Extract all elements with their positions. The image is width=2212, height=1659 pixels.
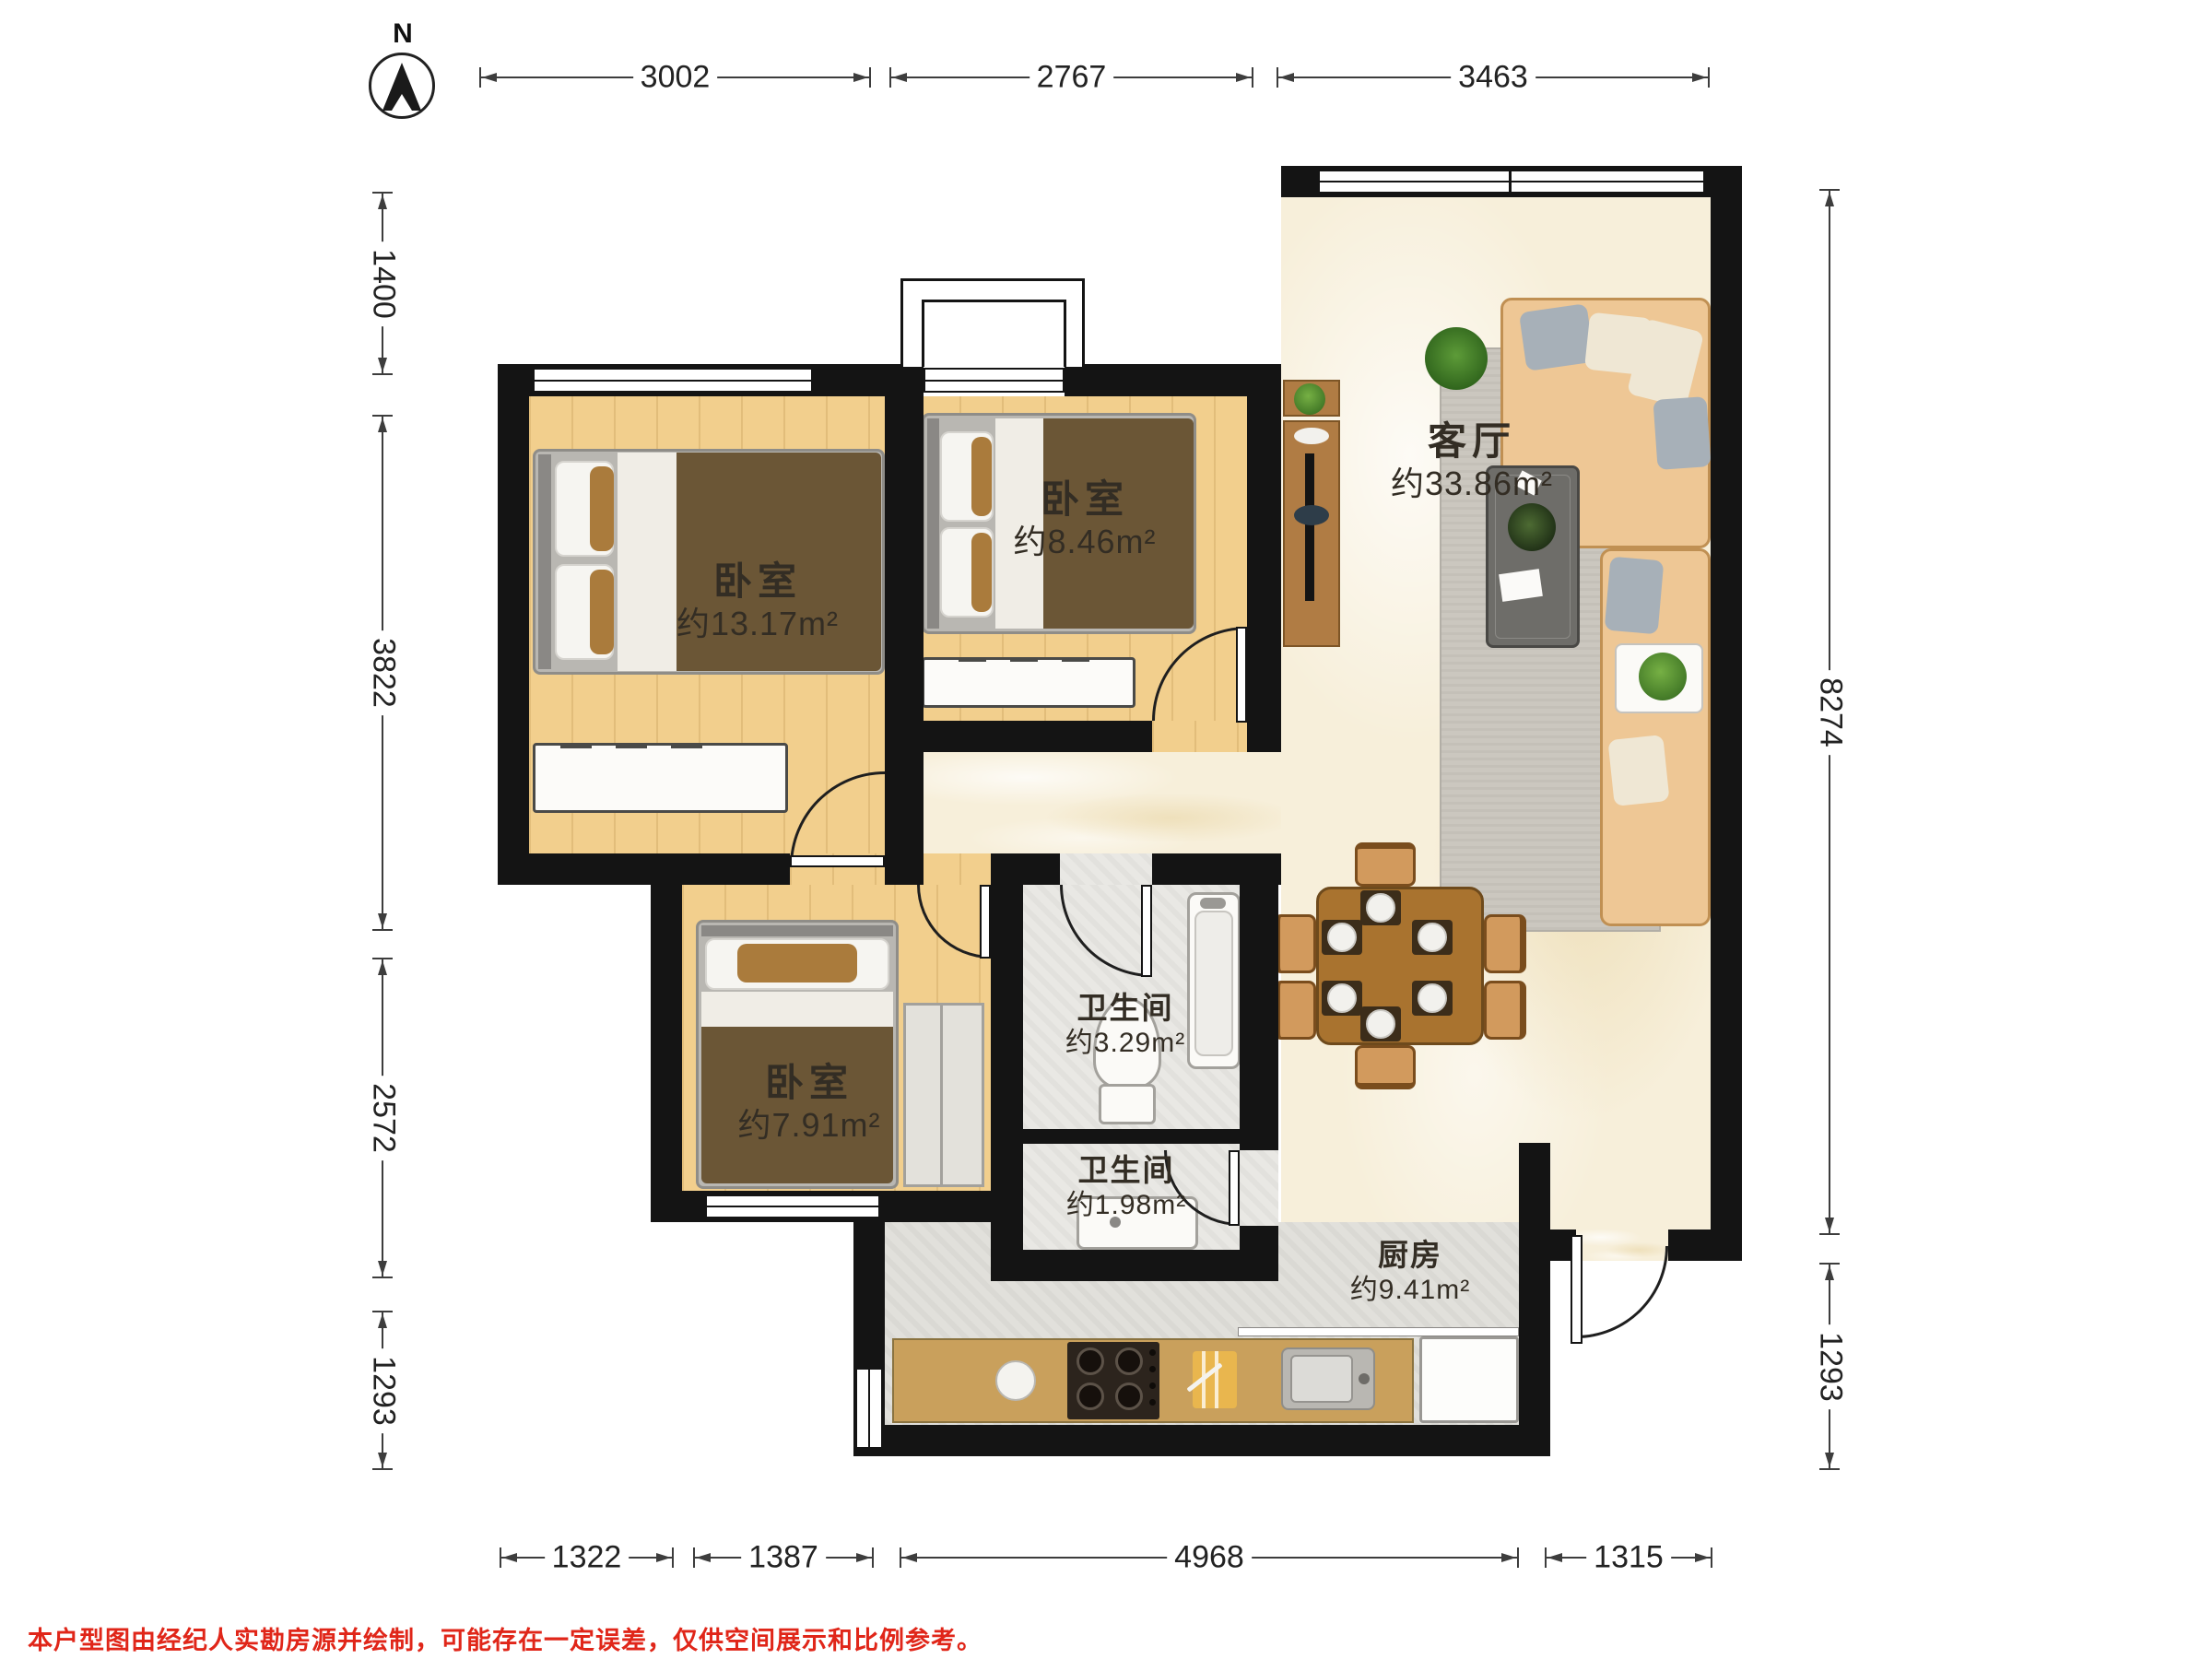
wall-right-outer — [1711, 166, 1742, 1261]
disclaimer-text: 本户型图由经纪人实勘房源并绘制，可能存在一定误差，仅供空间展示和比例参考。 — [28, 1620, 982, 1656]
dresser-main-handle-2 — [616, 743, 647, 748]
floor-plant — [1425, 327, 1488, 390]
stove-burner-4 — [1115, 1382, 1143, 1410]
dimension-value: 3002 — [633, 60, 718, 96]
dimension-top-3: 3463 — [1277, 65, 1710, 90]
dimension-right-1: 8274 — [1817, 189, 1842, 1235]
floorplan-canvas: 卧室 约13.17m² 卧室 约8.46m² 卧室 约7.91m² 客厅 约33… — [0, 0, 2212, 1659]
dresser-bedroom-mid — [922, 657, 1135, 708]
bed-main-blanket — [618, 453, 677, 671]
room-area: 约9.41m² — [1350, 1274, 1470, 1306]
door-leaf-bedroom-small — [980, 885, 991, 959]
window-bedroom-small — [705, 1194, 880, 1218]
dresser-mid-handle-2 — [1010, 657, 1038, 662]
shelf-plant — [1294, 383, 1325, 415]
wall-bathroom-bottom — [991, 1250, 1278, 1281]
dining-chair-left-1 — [1274, 914, 1316, 973]
wall-bedroom-mid-top — [1065, 364, 1247, 396]
room-label-bedroom-main: 卧室 约13.17m² — [677, 559, 839, 643]
bed-mid-pillow-brown-2 — [971, 533, 992, 612]
dining-chair-top — [1355, 842, 1416, 887]
room-area: 约7.91m² — [737, 1106, 880, 1145]
threshold-bathroom-small-door — [1240, 1150, 1278, 1226]
threshold-bathroom-main-door — [1060, 853, 1152, 885]
coffee-table-paper-1 — [1499, 569, 1543, 602]
wardrobe-divider — [940, 1006, 943, 1184]
bathtub-faucet — [1200, 898, 1226, 909]
dimension-value: 1387 — [741, 1540, 826, 1576]
kitchen-faucet — [1359, 1373, 1370, 1384]
bed-mid-headboard — [927, 418, 939, 629]
tv — [1305, 453, 1314, 601]
room-name: 卧室 — [1013, 477, 1156, 523]
place-setting-top — [1360, 890, 1401, 925]
dimension-value: 1315 — [1586, 1540, 1671, 1576]
dining-chair-right-1 — [1484, 914, 1526, 973]
wall-left-outer — [498, 364, 529, 885]
place-setting-bottom — [1360, 1006, 1401, 1041]
room-label-living-room: 客厅 约33.86m² — [1391, 418, 1553, 503]
dresser-main-handle-1 — [560, 743, 592, 748]
bed-main-pillow-brown-2 — [590, 570, 614, 654]
bed-main-pillow-brown-1 — [590, 466, 614, 551]
fridge — [1419, 1336, 1519, 1423]
dimension-value: 1322 — [545, 1540, 629, 1576]
dimension-left-4: 1293 — [370, 1311, 395, 1470]
room-area: 约33.86m² — [1391, 465, 1553, 503]
dimension-bottom-2: 1387 — [693, 1545, 874, 1571]
room-name: 卧室 — [737, 1060, 880, 1106]
wall-bathroom-divider — [991, 1129, 1240, 1144]
door-leaf-bathroom-small — [1229, 1150, 1240, 1226]
toilet-tank — [1099, 1084, 1156, 1124]
room-label-bathroom-small: 卫生间 约1.98m² — [1066, 1153, 1186, 1221]
room-name: 客厅 — [1391, 418, 1553, 465]
stove-knob-1 — [1149, 1349, 1156, 1356]
bed-main-headboard — [538, 454, 551, 669]
dimension-value: 3822 — [366, 630, 402, 715]
room-label-bedroom-mid: 卧室 约8.46m² — [1013, 477, 1156, 561]
place-setting-right-1 — [1412, 920, 1453, 955]
dimension-bottom-3: 4968 — [900, 1545, 1519, 1571]
sofa-pillow-cream-3 — [1607, 735, 1669, 806]
tv-console-tray — [1294, 505, 1329, 525]
stove-knob-3 — [1149, 1382, 1156, 1389]
wall-bedroom-mid-right — [1247, 364, 1281, 752]
fridge-top-line — [1238, 1327, 1519, 1336]
dimension-bottom-1: 1322 — [500, 1545, 674, 1571]
room-area: 约3.29m² — [1065, 1027, 1185, 1059]
kitchen-bowl — [995, 1360, 1036, 1401]
wall-kitchen-right — [1519, 1143, 1550, 1456]
dimension-value: 8274 — [1813, 670, 1849, 755]
stove-burner-3 — [1077, 1382, 1104, 1410]
bed-small-blanket — [701, 992, 893, 1027]
dimension-top-1: 3002 — [479, 65, 871, 90]
window-living-mullion — [1509, 170, 1512, 194]
room-name: 卫生间 — [1065, 991, 1185, 1027]
compass-needle-notch — [392, 94, 412, 111]
place-setting-left-1 — [1322, 920, 1362, 955]
dimension-bottom-4: 1315 — [1545, 1545, 1712, 1571]
dining-chair-bottom — [1355, 1045, 1416, 1089]
room-name: 厨房 — [1350, 1238, 1470, 1274]
room-area: 约13.17m² — [677, 605, 839, 643]
window-living-top — [1318, 170, 1705, 194]
side-table-plant — [1639, 653, 1687, 700]
compass-north-label: N — [393, 18, 413, 50]
door-arc-entry — [1576, 1246, 1668, 1338]
dining-chair-left-2 — [1274, 981, 1316, 1040]
wall-bedroom-main-bottom — [498, 853, 790, 885]
room-label-bedroom-small: 卧室 约7.91m² — [737, 1060, 880, 1145]
floor-corridor — [917, 752, 1281, 853]
tv-console-dish — [1294, 428, 1329, 444]
wall-bedroom-divider — [885, 364, 924, 885]
door-leaf-bedroom-main — [790, 855, 885, 867]
room-name: 卧室 — [677, 559, 839, 605]
coffee-table-plant — [1508, 503, 1556, 551]
wall-kitchen-bottom — [853, 1425, 1550, 1456]
bed-small-pillow-brown — [737, 944, 857, 982]
stove-knob-2 — [1149, 1366, 1156, 1372]
dimension-value: 2572 — [366, 1076, 402, 1160]
cutting-board-stripe-2 — [1215, 1351, 1218, 1408]
dimension-value: 1293 — [366, 1348, 402, 1433]
bay-window-inner — [922, 300, 1066, 367]
dresser-bedroom-main — [533, 743, 788, 813]
room-area: 约8.46m² — [1013, 523, 1156, 561]
wardrobe-bedroom-small — [903, 1003, 984, 1187]
dimension-left-3: 2572 — [370, 958, 395, 1278]
bed-mid-pillow-brown-1 — [971, 437, 992, 516]
place-setting-left-2 — [1322, 981, 1362, 1016]
wall-bathroom-right — [1240, 853, 1278, 1150]
bed-small-headboard — [701, 925, 893, 936]
sofa-pillow-gray-2 — [1653, 396, 1711, 470]
dimension-top-2: 2767 — [889, 65, 1253, 90]
room-name: 卫生间 — [1066, 1153, 1186, 1189]
room-area: 约1.98m² — [1066, 1189, 1186, 1221]
window-bedroom-mid-glass — [924, 368, 1065, 393]
wall-bedroom-mid-bottom — [917, 721, 1152, 752]
wall-bedroom-small-left — [651, 853, 682, 1222]
stove-burner-1 — [1077, 1347, 1104, 1375]
dresser-mid-handle-1 — [959, 657, 986, 662]
dimension-value: 2767 — [1030, 60, 1114, 96]
sofa-pillow-gray-3 — [1605, 557, 1665, 635]
dimension-value: 3463 — [1451, 60, 1535, 96]
threshold-bedroom-mid-door — [1152, 721, 1247, 752]
place-setting-right-2 — [1412, 981, 1453, 1016]
bathtub-basin — [1194, 911, 1233, 1056]
dimension-right-2: 1293 — [1817, 1263, 1842, 1470]
threshold-bedroom-small-door — [917, 853, 991, 885]
window-kitchen-left — [855, 1368, 883, 1449]
dresser-main-handle-3 — [671, 743, 702, 748]
dimension-left-1: 1400 — [370, 192, 395, 375]
door-leaf-entry — [1571, 1235, 1583, 1344]
wall-bathroom-left — [991, 853, 1023, 1253]
window-bedroom-main — [533, 368, 813, 393]
door-leaf-bathroom-main — [1141, 885, 1152, 977]
dimension-value: 1293 — [1813, 1324, 1849, 1409]
dimension-value: 1400 — [366, 241, 402, 326]
stove-knob-4 — [1149, 1399, 1156, 1406]
room-label-kitchen: 厨房 约9.41m² — [1350, 1238, 1470, 1306]
kitchen-sink-basin — [1290, 1355, 1353, 1403]
wall-entry-corner — [1668, 1230, 1742, 1261]
stove-burner-2 — [1115, 1347, 1143, 1375]
door-leaf-bedroom-mid — [1236, 627, 1247, 723]
dresser-mid-handle-3 — [1062, 657, 1089, 662]
sofa-pillow-gray-1 — [1519, 303, 1594, 371]
dimension-left-2: 3822 — [370, 415, 395, 931]
dimension-value: 4968 — [1167, 1540, 1252, 1576]
room-label-bathroom-main: 卫生间 约3.29m² — [1065, 991, 1185, 1059]
dining-chair-right-2 — [1484, 981, 1526, 1040]
